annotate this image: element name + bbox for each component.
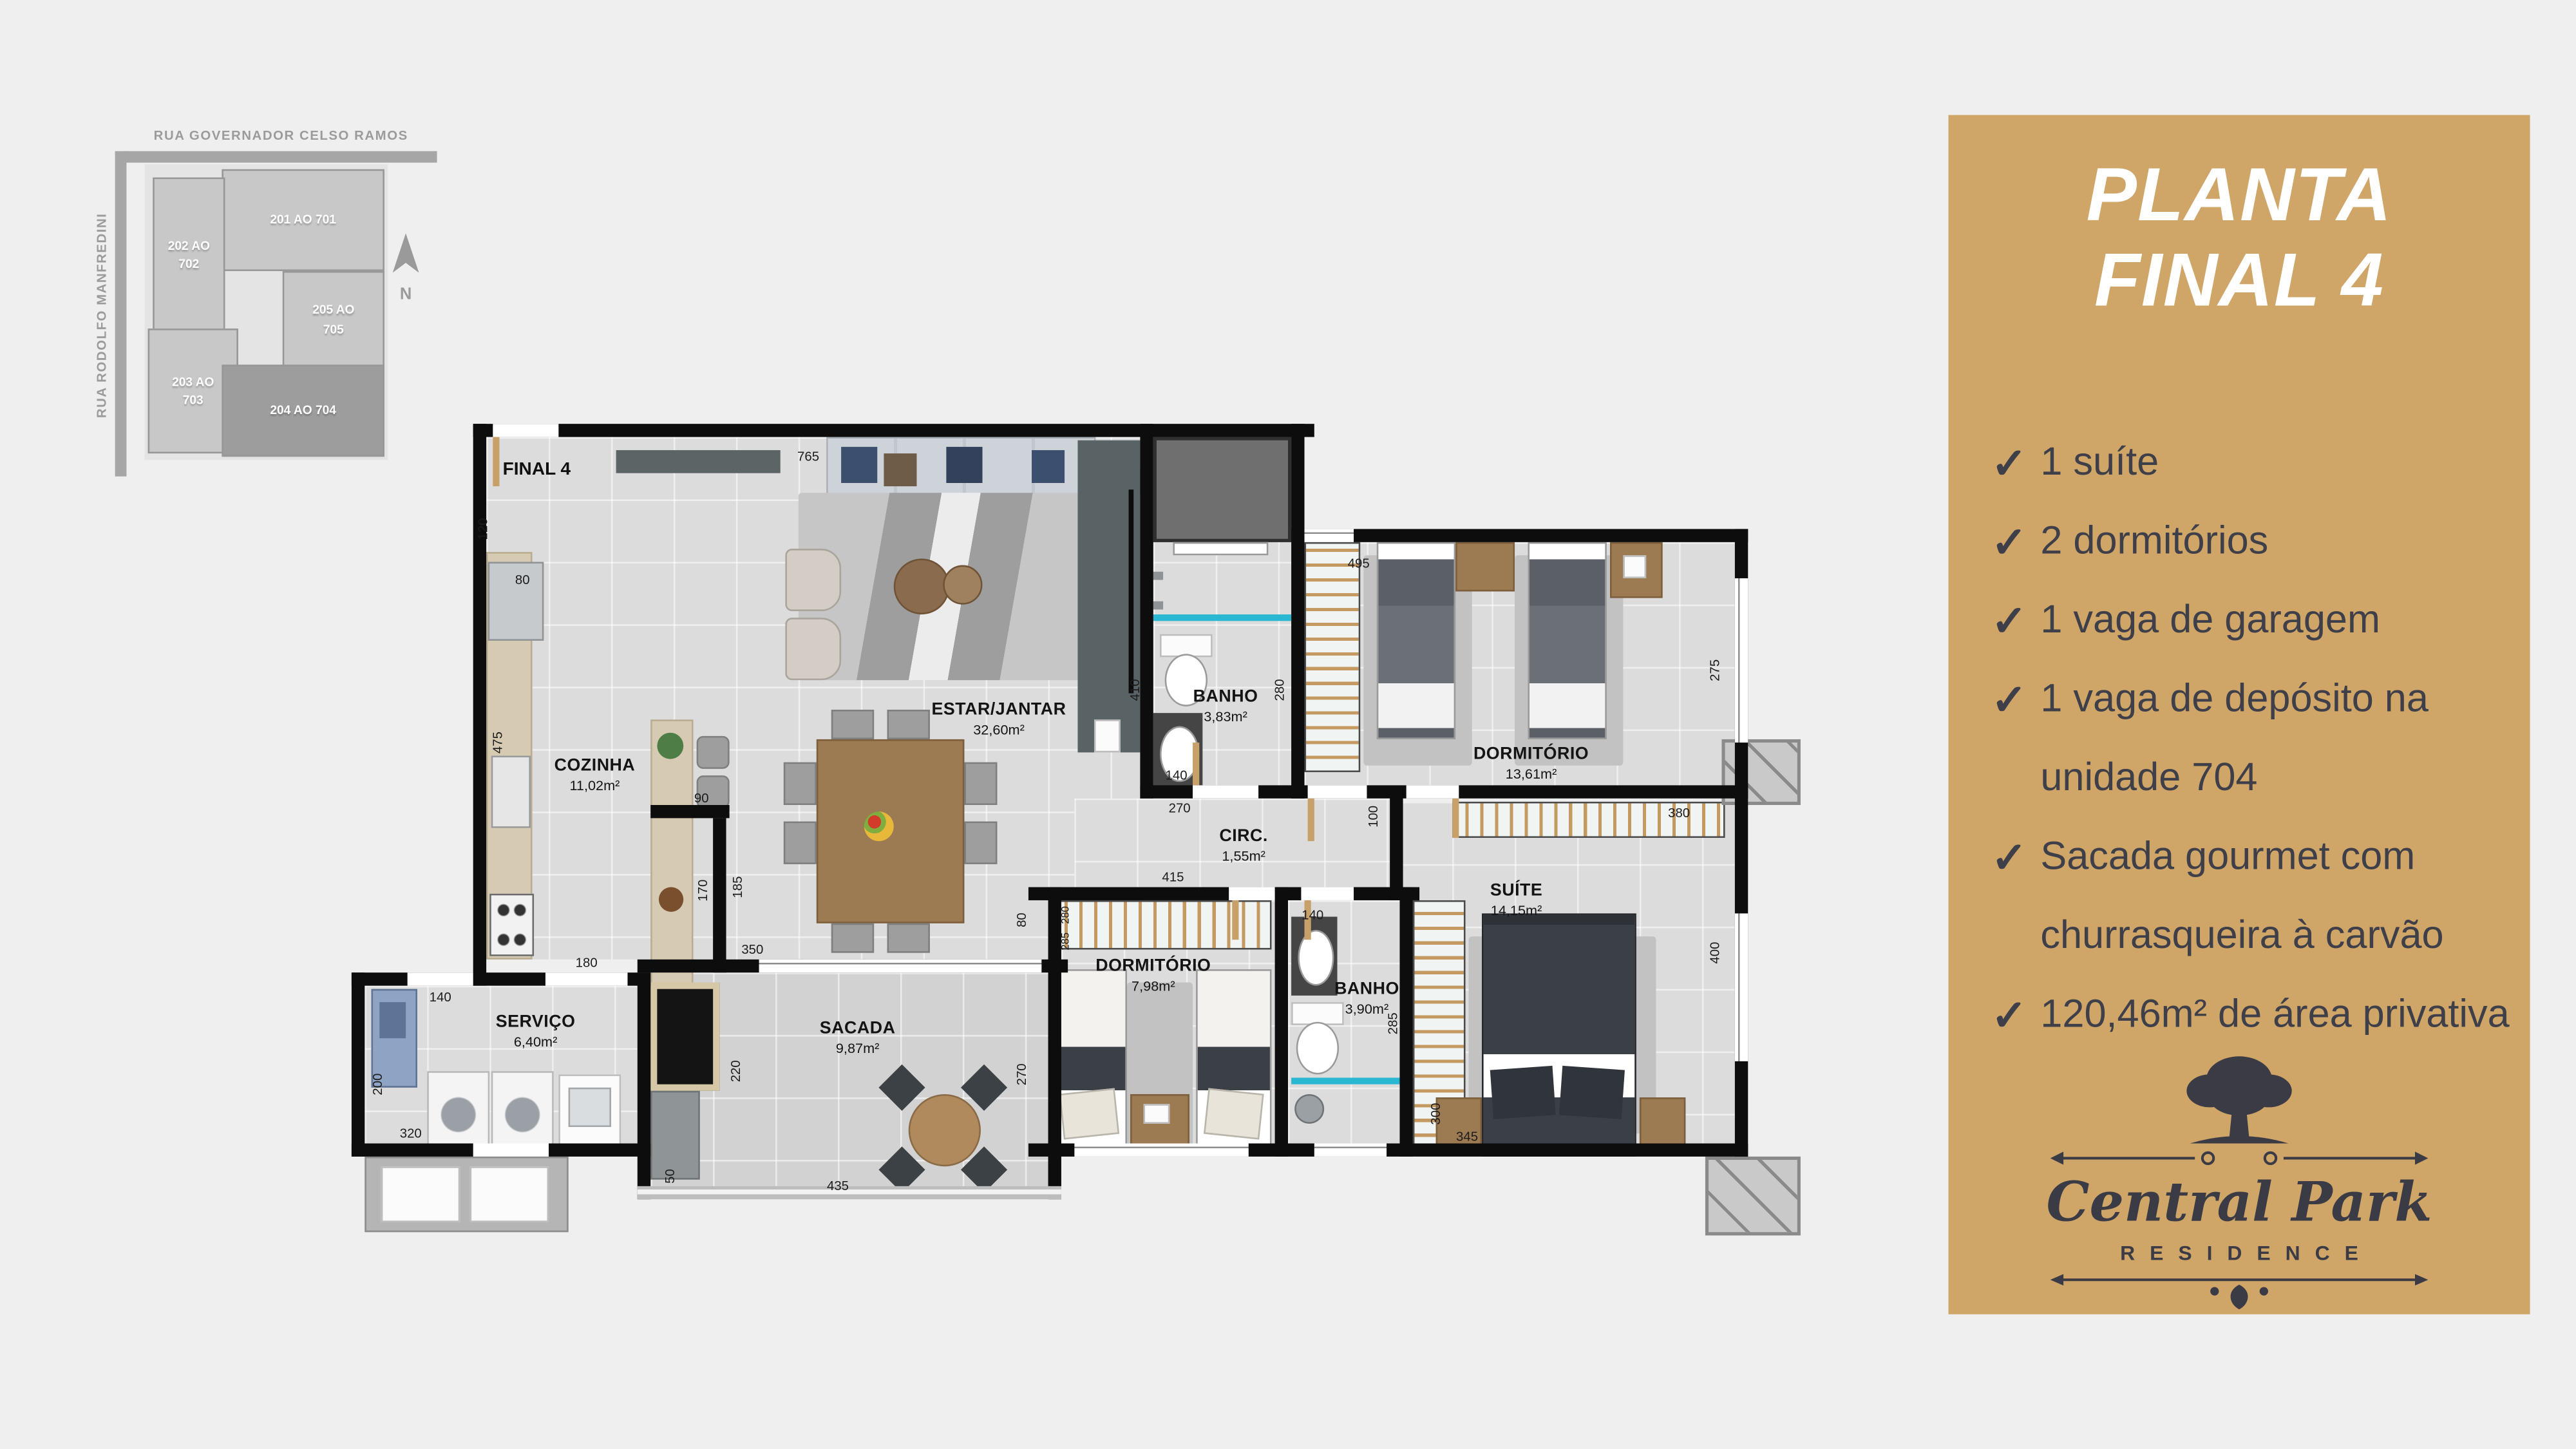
dim-counter: 475 [490, 732, 505, 753]
dim-sacada-step: 50 [663, 1169, 677, 1184]
armchair [785, 549, 841, 611]
flourish-top-icon [2050, 1147, 2429, 1170]
feature-list: ✓1 suíte ✓2 dormitórios ✓1 vaga de garag… [1991, 424, 2517, 1055]
wall [1048, 887, 1061, 1200]
dim-dorm2-left: 270 [1014, 1063, 1029, 1085]
check-icon: ✓ [1991, 582, 2041, 660]
dim-suite-ward-len: 345 [1456, 1130, 1478, 1144]
dim-grill: 220 [728, 1060, 743, 1082]
single-bed [1377, 542, 1455, 739]
bed-pillow [1490, 1066, 1556, 1119]
half-wall [650, 805, 729, 818]
island-counter [650, 719, 693, 985]
coffee-table-small [943, 565, 982, 605]
balcony-railing [638, 1186, 1061, 1199]
stool [697, 736, 730, 769]
dim-dorm1-top: 495 [1348, 556, 1370, 571]
entry-door-opening [493, 424, 558, 437]
kitchen-sink [491, 755, 531, 828]
dining-chair [964, 762, 997, 805]
street-left-bar [115, 151, 127, 477]
bed-pillow [1059, 1088, 1119, 1140]
feature-item: ✓Sacada gourmet com churrasqueira à carv… [1991, 818, 2517, 976]
panel-title-line2: FINAL 4 [1949, 236, 2530, 322]
dim-dorm2-ward-b: 285 [1061, 933, 1072, 951]
balcony-table [909, 1094, 981, 1166]
wall [473, 424, 1314, 437]
shower-head [1294, 1094, 1324, 1124]
room-label-suite: SUÍTE14,15m² [1490, 880, 1542, 918]
map-block-201: 201 AO 701 [222, 169, 384, 271]
tree-icon [2161, 1052, 2318, 1147]
sofa-pillow [1032, 450, 1065, 483]
feature-item: ✓2 dormitórios [1991, 503, 2517, 582]
dim-suite-right: 400 [1708, 942, 1723, 964]
dim-dorm2-ward-depth: 80 [1014, 913, 1029, 927]
north-arrow-icon [391, 233, 421, 283]
dim-island-wall: 185 [730, 876, 745, 898]
suite-door-opening [1406, 785, 1459, 798]
feature-item: ✓1 suíte [1991, 424, 2517, 502]
single-bed [1528, 542, 1606, 739]
dim-dorm2-top: 415 [1162, 870, 1184, 885]
dim-dorm1-right: 275 [1708, 659, 1723, 681]
dim-servico-opening: 140 [430, 990, 451, 1005]
street-top-bar [125, 151, 437, 163]
exterior-tub [470, 1166, 549, 1222]
dorm1-door-opening [1308, 785, 1367, 798]
island-plant [657, 733, 683, 759]
map-block-205: 205 AO 705 [283, 271, 384, 368]
entry-door-leaf [493, 437, 499, 487]
dim-servico-left: 200 [370, 1074, 385, 1095]
dim-left-top: 120 [476, 518, 491, 540]
sofa-pillow [884, 453, 916, 486]
map-block-204: 204 AO 704 [222, 365, 384, 457]
dorm2-door-leaf [1232, 900, 1238, 940]
servico-door-opening [473, 1144, 549, 1157]
dim-dorm2-ward-a: 280 [1061, 906, 1072, 924]
tank-basin [569, 1088, 611, 1127]
room-label-sacada: SACADA9,87m² [820, 1019, 896, 1056]
unit-label: FINAL 4 [503, 460, 571, 480]
dining-chair [887, 923, 930, 953]
window-dorm1 [1735, 578, 1748, 743]
tablet [1094, 719, 1121, 752]
dim-estar-right: 410 [1128, 679, 1142, 701]
shower-box [1153, 437, 1291, 542]
dim-pass: 350 [741, 942, 763, 957]
room-label-dorm2: DORMITÓRIO7,98m² [1095, 956, 1211, 994]
wall [473, 424, 486, 985]
room-label-banho1: BANHO3,83m² [1193, 687, 1258, 724]
dim-fridge: 80 [515, 573, 530, 587]
dim-kitchen-opening: 180 [576, 955, 598, 970]
north-label: N [400, 286, 412, 304]
dining-chair [964, 822, 997, 864]
exterior-tub [381, 1166, 460, 1222]
sofa-pillow [946, 447, 982, 483]
dorm2-door-opening [1229, 887, 1274, 900]
wall [1291, 529, 1748, 542]
dim-banho1-sink: 140 [1165, 768, 1187, 783]
double-bed [1482, 913, 1636, 1157]
dim-suite-rail: 380 [1668, 806, 1690, 820]
lamp [1623, 555, 1646, 578]
room-label-cozinha: COZINHA11,02m² [554, 755, 636, 793]
iron [379, 1002, 406, 1038]
dim-island-gap: 90 [694, 791, 709, 806]
fruit-bowl [864, 811, 894, 841]
kitchen-opening [545, 972, 628, 985]
brand-name: Central Park [2046, 1170, 2432, 1235]
banho1-door-leaf [1193, 743, 1199, 785]
nightstand [1640, 1097, 1685, 1150]
dim-banho1-right: 280 [1273, 679, 1287, 701]
brand-subtitle: RESIDENCE [2105, 1242, 2373, 1265]
wall [1275, 887, 1288, 1157]
dining-chair [831, 710, 874, 739]
armchair [785, 618, 841, 680]
laptop [1144, 1104, 1170, 1124]
tv [1129, 489, 1134, 693]
dim-circ-right: 100 [1366, 806, 1381, 828]
suite-door-leaf [1452, 799, 1459, 838]
dim-servico-bottom: 320 [400, 1126, 422, 1141]
wardrobe-dorm1 [1305, 542, 1361, 772]
bed-pillow [1204, 1088, 1264, 1140]
ac-platform [1705, 1157, 1801, 1235]
dim-circ-opening: 270 [1169, 801, 1191, 816]
map-block-202: 202 AO 702 [153, 178, 225, 332]
wall [1028, 887, 1419, 900]
window-dorm1-top [1305, 529, 1354, 542]
check-icon: ✓ [1991, 503, 2041, 582]
washer [427, 1071, 489, 1146]
wall [1399, 887, 1412, 1157]
panel-title-line1: PLANTA [1949, 151, 2530, 237]
cooktop [489, 894, 534, 956]
check-icon: ✓ [1991, 818, 2041, 896]
flourish-bottom-icon [2050, 1271, 2429, 1311]
wall [1291, 424, 1304, 799]
bedside-desk [1455, 542, 1515, 592]
coffee-table [894, 558, 950, 614]
dim-island-len: 170 [696, 880, 710, 902]
window-suite [1735, 913, 1748, 1061]
half-wall [713, 818, 726, 972]
charcoal-grill [650, 983, 719, 1091]
dim-banho2-sink: 140 [1302, 907, 1323, 922]
toilet-bowl2 [1296, 1022, 1339, 1075]
dining-chair [831, 923, 874, 953]
room-label-banho2: BANHO3,90m² [1334, 979, 1399, 1016]
banho2-door-opening [1301, 887, 1354, 900]
check-icon: ✓ [1991, 424, 2041, 502]
check-icon: ✓ [1991, 976, 2041, 1054]
sliding-door-sacada [759, 960, 1042, 972]
wall [1390, 788, 1403, 900]
page: RUA GOVERNADOR CELSO RAMOS RUA RODOLFO M… [0, 0, 2576, 1449]
room-label-servico: SERVIÇO6,40m² [496, 1012, 576, 1049]
island-bowl [659, 887, 683, 912]
feature-item: ✓120,46m² de área privativa [1991, 976, 2517, 1054]
vanity-sink2 [1298, 930, 1334, 986]
dim-estar-top: 765 [797, 450, 819, 464]
shower-door [1173, 542, 1268, 555]
dim-suite-ward: 300 [1428, 1103, 1443, 1125]
glass-partition [1153, 614, 1291, 621]
room-label-circ: CIRC.1,55m² [1219, 826, 1267, 864]
wall [638, 972, 650, 1199]
room-label-dorm1: DORMITÓRIO13,61m² [1473, 744, 1589, 782]
dining-chair [784, 762, 817, 805]
street-name-top: RUA GOVERNADOR CELSO RAMOS [125, 128, 437, 143]
glass-partition2 [1291, 1077, 1399, 1084]
dryer [491, 1071, 554, 1146]
wall [352, 972, 365, 1157]
panel-title: PLANTA FINAL 4 [1949, 151, 2530, 322]
wall [1140, 424, 1153, 799]
servico-opening [408, 972, 473, 985]
faucet-knob [1153, 601, 1163, 610]
console-sideboard [616, 450, 781, 473]
dorm1-door-leaf [1308, 799, 1314, 841]
dining-chair [887, 710, 930, 739]
room-label-estar: ESTAR/JANTAR32,60m² [932, 700, 1066, 737]
window-banho2 [1314, 1144, 1387, 1157]
banho1-door-opening [1193, 785, 1258, 798]
sofa-pillow [841, 447, 877, 483]
dim-sacada-bottom: 435 [827, 1179, 849, 1193]
bed-pillow [1559, 1066, 1625, 1119]
feature-item: ✓1 vaga de garagem [1991, 582, 2517, 660]
dining-chair [784, 822, 817, 864]
faucet-knob [1153, 572, 1163, 580]
brand-logo: Central Park RESIDENCE [2047, 1052, 2432, 1311]
feature-item: ✓1 vaga de depósito na unidade 704 [1991, 661, 2517, 819]
balcony-bench [650, 1091, 700, 1180]
street-name-left: RUA RODOLFO MANFREDINI [95, 213, 109, 418]
check-icon: ✓ [1991, 661, 2041, 739]
window-dorm2 [1074, 1144, 1248, 1157]
